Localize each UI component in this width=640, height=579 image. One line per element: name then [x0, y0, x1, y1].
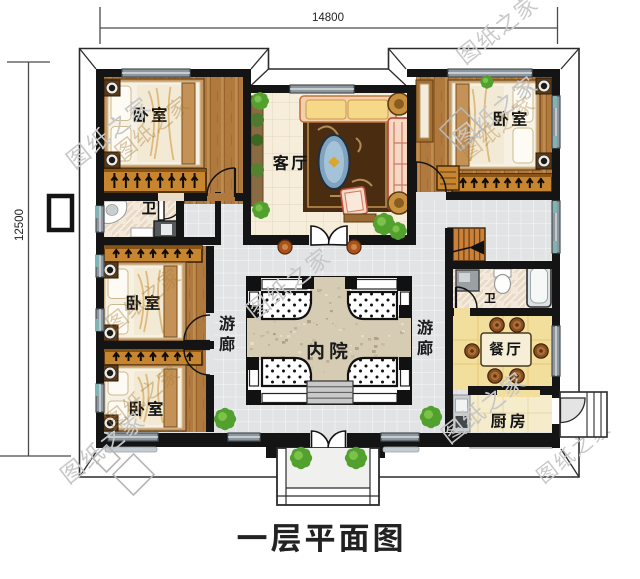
svg-text:14800: 14800: [312, 12, 344, 24]
svg-text:12500: 12500: [14, 209, 26, 241]
